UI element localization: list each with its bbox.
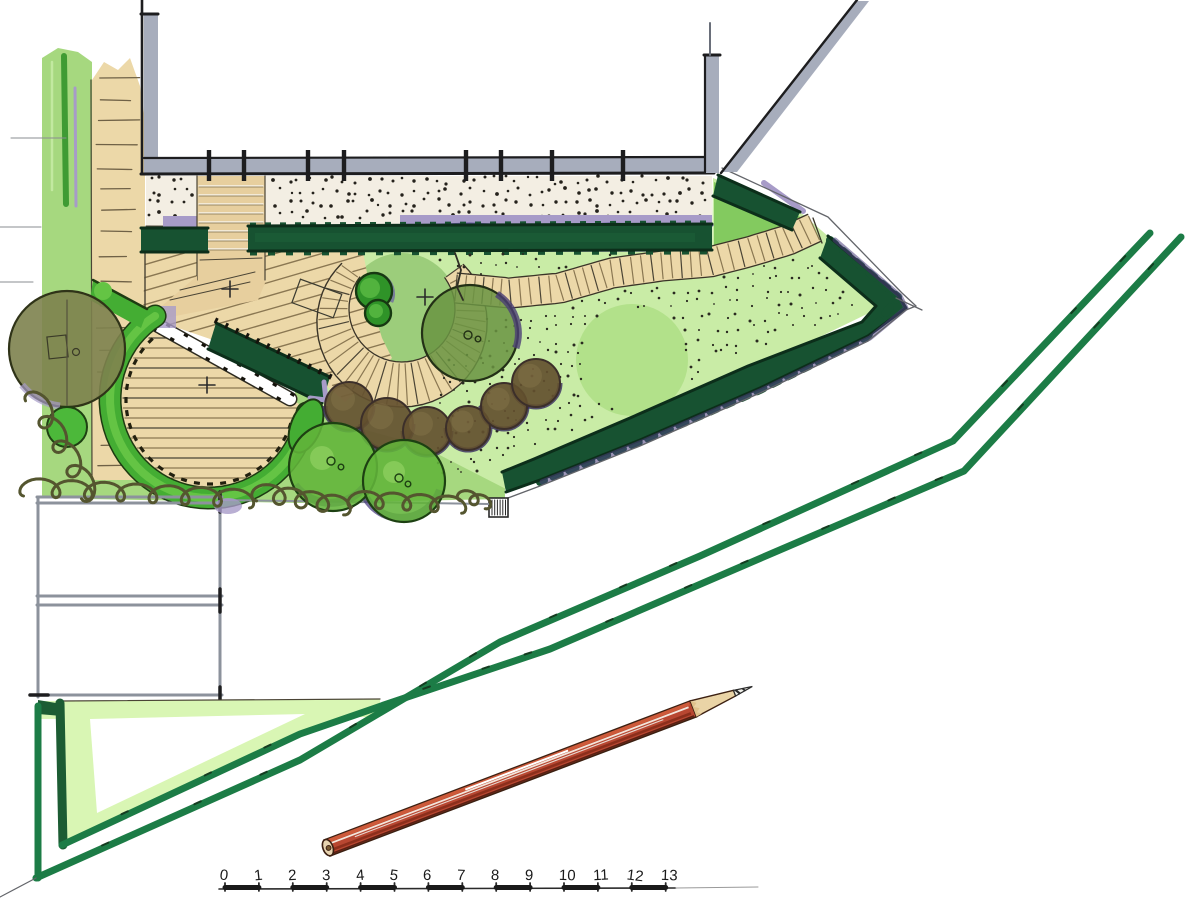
svg-text:12: 12: [626, 866, 645, 885]
svg-text:8: 8: [491, 867, 500, 884]
svg-text:2: 2: [288, 867, 297, 884]
svg-text:11: 11: [593, 866, 609, 884]
svg-text:13: 13: [661, 867, 678, 885]
svg-text:10: 10: [559, 867, 576, 885]
svg-text:9: 9: [525, 867, 534, 884]
svg-text:7: 7: [456, 867, 465, 884]
svg-text:4: 4: [355, 867, 365, 885]
svg-text:6: 6: [423, 867, 432, 884]
svg-text:3: 3: [322, 867, 331, 884]
svg-text:1: 1: [253, 867, 263, 885]
